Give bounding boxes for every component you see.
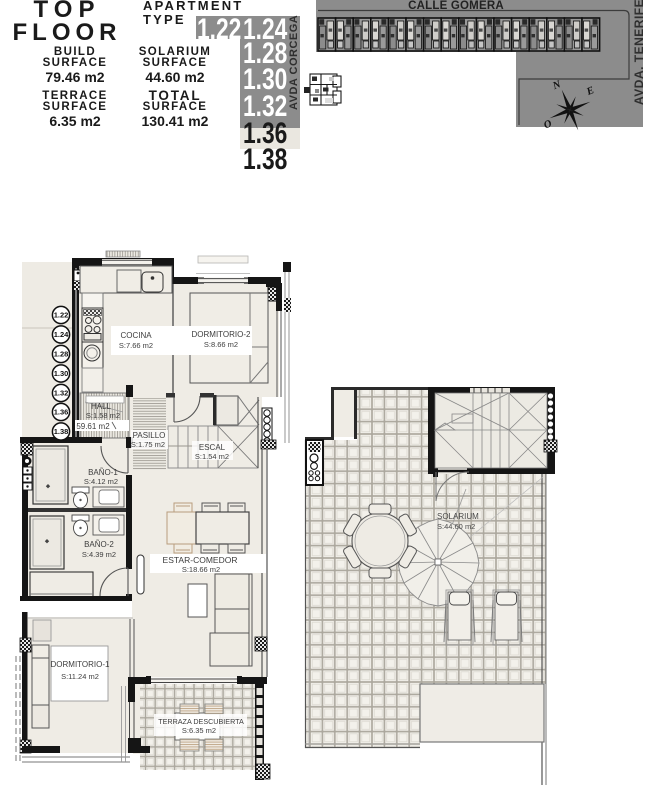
svg-text:DORMITORIO-2: DORMITORIO-2: [192, 330, 252, 339]
svg-text:SURFACE: SURFACE: [143, 101, 208, 113]
svg-text:SURFACE: SURFACE: [43, 57, 108, 69]
svg-text:ESTAR-COMEDOR: ESTAR-COMEDOR: [163, 555, 238, 565]
svg-text:S:4.39 m2: S:4.39 m2: [82, 550, 116, 559]
svg-text:1.24: 1.24: [54, 330, 69, 339]
svg-text:130.41 m2: 130.41 m2: [142, 113, 209, 129]
svg-text:AVDA CORCEGA: AVDA CORCEGA: [288, 15, 300, 110]
svg-text:SURFACE: SURFACE: [43, 101, 108, 113]
svg-text:TYPE: TYPE: [143, 12, 186, 27]
svg-text:AVDA. TENERIFE: AVDA. TENERIFE: [632, 0, 646, 105]
svg-text:PASILLO: PASILLO: [133, 431, 166, 440]
svg-text:1.22: 1.22: [197, 12, 241, 46]
svg-text:BAÑO-2: BAÑO-2: [84, 540, 114, 549]
svg-text:79.46 m2: 79.46 m2: [45, 69, 104, 85]
svg-text:1.38: 1.38: [54, 427, 69, 436]
svg-text:FLOOR: FLOOR: [13, 19, 122, 46]
svg-text:S:1.75 m2: S:1.75 m2: [131, 440, 165, 449]
svg-text:S:8.66 m2: S:8.66 m2: [204, 340, 238, 349]
svg-text:TERRAZA DESCUBIERTA: TERRAZA DESCUBIERTA: [158, 717, 244, 726]
svg-text:1.36: 1.36: [54, 408, 69, 417]
svg-text:S:6.35 m2: S:6.35 m2: [182, 726, 216, 735]
svg-text:S:1.54 m2: S:1.54 m2: [195, 452, 229, 461]
svg-text:HALL: HALL: [91, 402, 112, 411]
svg-text:6.35 m2: 6.35 m2: [49, 113, 101, 129]
svg-text:S:18.66 m2: S:18.66 m2: [182, 565, 220, 574]
svg-text:44.60 m2: 44.60 m2: [145, 69, 204, 85]
svg-text:SOLARIUM: SOLARIUM: [437, 512, 479, 521]
svg-text:S:11.24 m2: S:11.24 m2: [61, 672, 99, 681]
svg-text:S:7.66 m2: S:7.66 m2: [119, 341, 153, 350]
svg-text:1.22: 1.22: [54, 311, 69, 320]
svg-text:59.61 m2: 59.61 m2: [76, 422, 110, 431]
svg-text:COCINA: COCINA: [120, 331, 152, 340]
svg-text:SURFACE: SURFACE: [143, 57, 208, 69]
svg-text:S:4.12 m2: S:4.12 m2: [84, 477, 118, 486]
svg-text:1.28: 1.28: [54, 350, 69, 359]
svg-text:BAÑO-1: BAÑO-1: [88, 468, 118, 477]
svg-text:S:1.58 m2: S:1.58 m2: [86, 411, 120, 420]
svg-text:1.38: 1.38: [243, 142, 287, 176]
svg-text:1.30: 1.30: [54, 369, 69, 378]
svg-text:1.32: 1.32: [54, 389, 69, 398]
svg-text:DORMITORIO-1: DORMITORIO-1: [51, 660, 111, 669]
svg-text:ESCAL: ESCAL: [199, 443, 226, 452]
svg-text:S:44.60 m2: S:44.60 m2: [437, 522, 475, 531]
